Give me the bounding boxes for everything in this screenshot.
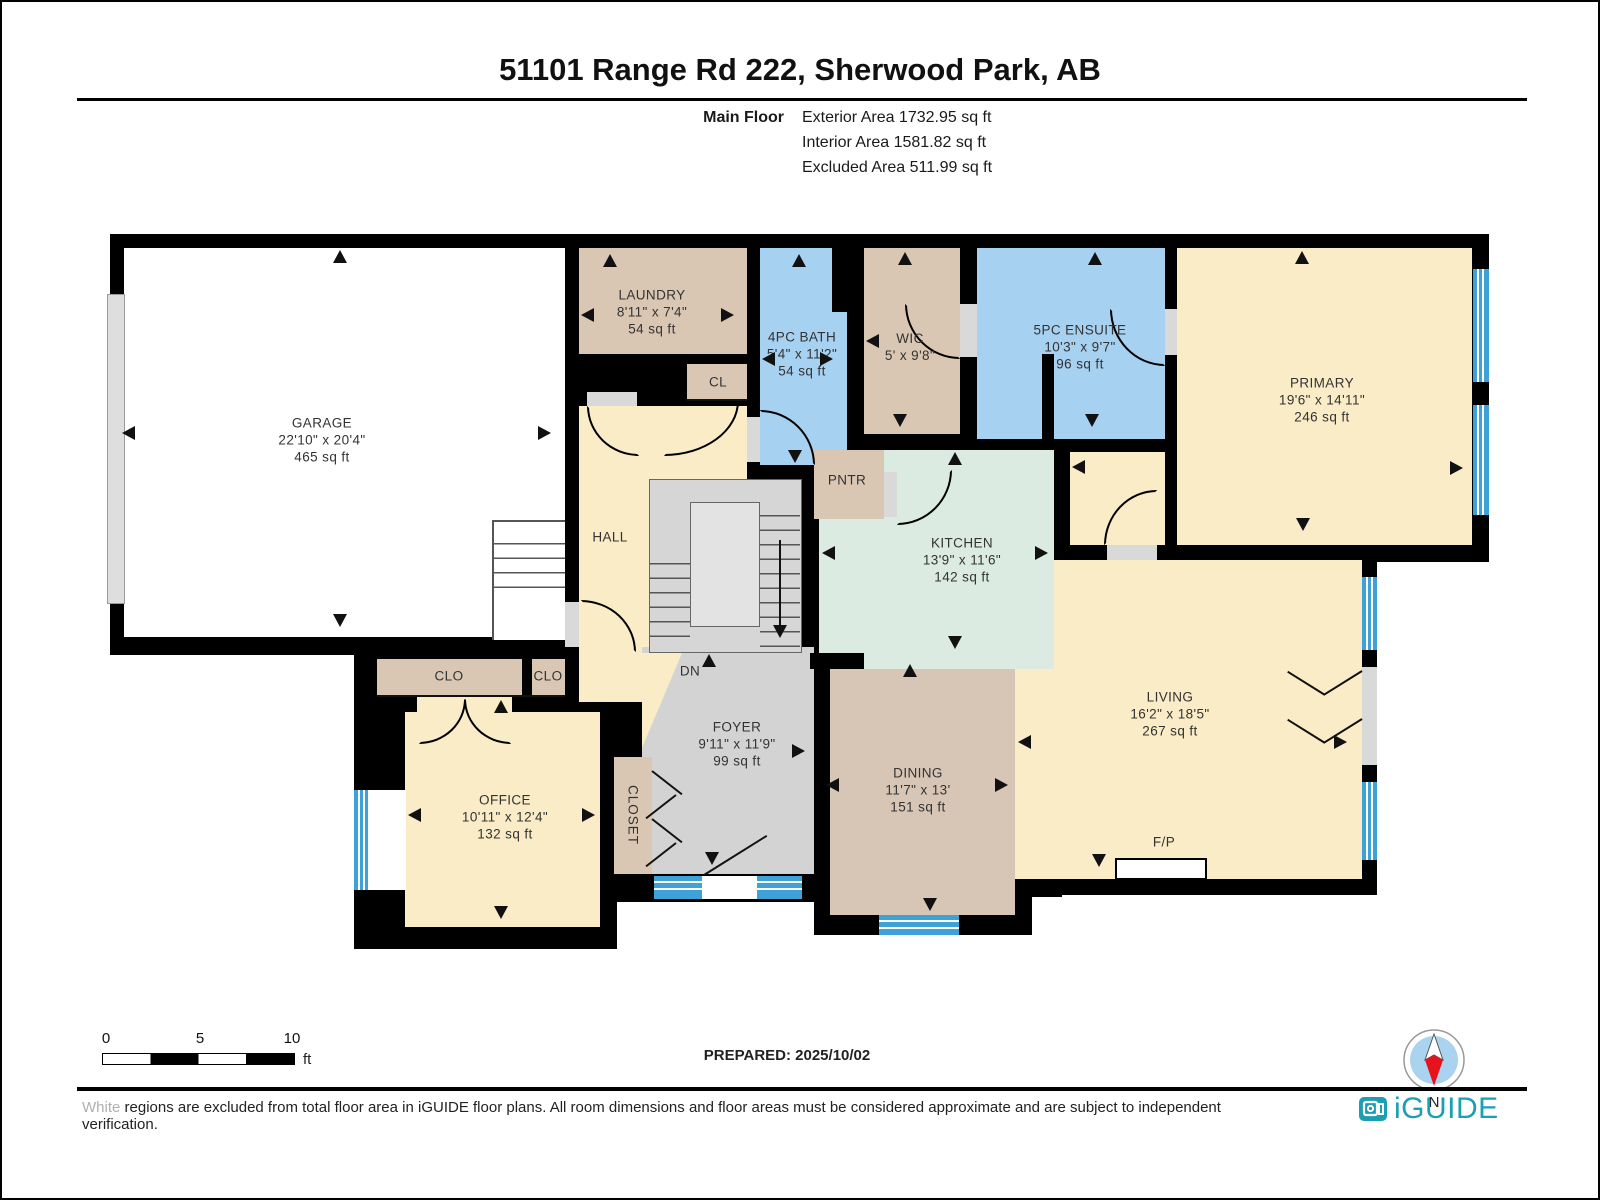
clo-door-line <box>377 695 565 697</box>
garage-door <box>107 294 125 604</box>
room-label-primary: PRIMARY19'6" x 14'11"246 sq ft <box>1279 375 1365 426</box>
arrow-bath-down <box>788 450 802 463</box>
garage-stairs <box>492 520 565 640</box>
room-living-strip <box>1015 669 1054 879</box>
ensuite-door-gap <box>1165 309 1177 355</box>
arrow-bath-left <box>762 352 775 366</box>
footer-rule <box>77 1087 1527 1091</box>
room-label-ensuite: 5PC ENSUITE10'3" x 9'7"96 sq ft <box>1034 322 1127 373</box>
arrow-ensuite-up <box>1088 252 1102 265</box>
room-label-laundry: LAUNDRY8'11" x 7'4"54 sq ft <box>617 287 687 338</box>
garage-stairs-treads <box>494 530 565 592</box>
entry-sidelite-2 <box>757 876 802 899</box>
room-label-wic: WIC5' x 9'8" <box>885 330 935 364</box>
main-stairs <box>649 479 802 653</box>
room-kitchen-strip <box>864 653 1054 669</box>
arrow-wic-up <box>898 252 912 265</box>
wall-bath-notch <box>832 248 847 312</box>
living-window-1 <box>1362 577 1377 650</box>
room-label-dn: DN <box>680 663 700 680</box>
arrow-dn-up <box>702 654 716 667</box>
disclaimer-lead: White <box>82 1099 120 1116</box>
arrow-corridor-left <box>1072 460 1085 474</box>
arrow-laundry-left <box>581 308 594 322</box>
disclaimer-rest: regions are excluded from total floor ar… <box>82 1099 1221 1133</box>
exterior-area: Exterior Area 1732.95 sq ft <box>802 109 991 127</box>
arrow-dining-up <box>903 664 917 677</box>
room-label-closet: CLOSET <box>626 785 641 845</box>
arrow-living-right <box>1334 735 1347 749</box>
office-bay-window <box>354 790 368 890</box>
arrow-garage-left <box>122 426 135 440</box>
primary-entry-door-gap <box>1107 545 1157 560</box>
page-title: 51101 Range Rd 222, Sherwood Park, AB <box>2 52 1598 88</box>
compass <box>1402 1028 1466 1092</box>
floorplan-page: 51101 Range Rd 222, Sherwood Park, AB Ma… <box>0 0 1600 1200</box>
fireplace-box <box>1115 858 1207 880</box>
living-window-2 <box>1362 782 1377 860</box>
arrow-ensuite-down <box>1085 414 1099 427</box>
arrow-garage-up <box>333 250 347 263</box>
header-rule <box>77 98 1527 101</box>
arrow-office-down <box>494 906 508 919</box>
bath-door-gap <box>747 417 760 462</box>
entry-door-gap <box>702 876 757 899</box>
stairs-treads-left <box>650 550 690 650</box>
arrow-wic-left <box>866 334 879 348</box>
arrow-kitchen-down <box>948 636 962 649</box>
arrow-bath-right <box>820 352 833 366</box>
room-label-hall: HALL <box>592 529 627 546</box>
room-label-dining: DINING11'7" x 13'151 sq ft <box>885 765 950 816</box>
arrow-office-up <box>494 700 508 713</box>
arrow-wic-down <box>893 414 907 427</box>
laundry-door-gap <box>587 392 637 406</box>
room-label-foyer: FOYER9'11" x 11'9"99 sq ft <box>698 719 775 770</box>
arrow-kitchen-right <box>1035 546 1048 560</box>
room-label-pntr: PNTR <box>828 472 866 489</box>
room-label-clo1: CLO <box>435 668 464 685</box>
scale-bar <box>102 1053 295 1065</box>
arrow-laundry-right <box>721 308 734 322</box>
scale-unit: ft <box>303 1051 311 1068</box>
floor-label: Main Floor <box>562 109 784 127</box>
living-casement-opening <box>1362 667 1377 765</box>
arrow-primary-down <box>1296 518 1310 531</box>
wic-door-gap <box>960 304 977 357</box>
bay-window-area <box>368 790 406 890</box>
arrow-garage-down <box>333 614 347 627</box>
scale-tick-0: 0 <box>102 1030 110 1047</box>
brand-logo: iGUIDE <box>1358 1092 1499 1126</box>
interior-area: Interior Area 1581.82 sq ft <box>802 134 986 152</box>
arrow-office-right <box>582 808 595 822</box>
compass-icon <box>1402 1028 1466 1092</box>
arrow-garage-right <box>538 426 551 440</box>
arrow-living-left <box>1018 735 1031 749</box>
prepared-date: PREPARED: 2025/10/02 <box>704 1047 870 1064</box>
arrow-kitchen-up <box>948 452 962 465</box>
primary-window-2 <box>1473 405 1489 515</box>
scale-tick-5: 5 <box>196 1030 204 1047</box>
room-label-living: LIVING16'2" x 18'5"267 sq ft <box>1130 689 1209 740</box>
arrow-primary-right <box>1450 461 1463 475</box>
brand-text: iGUIDE <box>1394 1092 1499 1126</box>
arrow-foyer-right <box>792 744 805 758</box>
arrow-laundry-up <box>603 254 617 267</box>
arrow-dining-left <box>826 778 839 792</box>
arrow-living-down <box>1092 854 1106 867</box>
arrow-dining-right <box>995 778 1008 792</box>
primary-window-1 <box>1473 269 1489 382</box>
pantry-door-gap <box>884 472 897 517</box>
dining-window <box>879 915 959 935</box>
room-label-garage: GARAGE22'10" x 20'4"465 sq ft <box>278 415 365 466</box>
iguide-camera-icon <box>1358 1096 1388 1122</box>
arrow-dining-down <box>923 898 937 911</box>
arrow-office-left <box>408 808 421 822</box>
scale-tick-10: 10 <box>284 1030 301 1047</box>
entry-sidelite-1 <box>654 876 702 899</box>
room-label-clo2: CLO <box>534 668 563 685</box>
arrow-entry-down <box>705 852 719 865</box>
stairs-railing <box>690 502 760 627</box>
stairs-down-arrow-head <box>773 625 787 638</box>
room-label-office: OFFICE10'11" x 12'4"132 sq ft <box>462 792 548 843</box>
room-label-fp: F/P <box>1153 834 1175 851</box>
excluded-area: Excluded Area 511.99 sq ft <box>802 159 992 177</box>
room-label-kitchen: KITCHEN13'9" x 11'6"142 sq ft <box>923 535 1001 586</box>
wall-kitchen-dining-stub <box>810 653 864 669</box>
disclaimer: White regions are excluded from total fl… <box>82 1099 1282 1133</box>
arrow-kitchen-left <box>822 546 835 560</box>
stairs-down-arrow-line <box>779 540 781 625</box>
garage-hall-door-gap <box>565 602 579 647</box>
arrow-bath-up <box>792 254 806 267</box>
arrow-primary-up <box>1295 251 1309 264</box>
room-label-cl: CL <box>709 374 727 391</box>
